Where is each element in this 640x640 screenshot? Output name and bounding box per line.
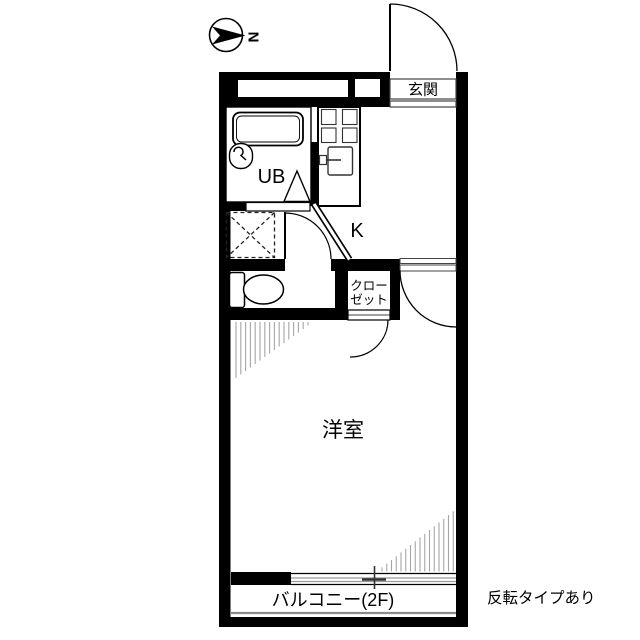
floorplan-canvas: N 玄関 UB (0, 0, 640, 640)
closet-label-line1: クロー (350, 279, 388, 293)
wall-ub-bottom (224, 202, 246, 211)
wall-right (456, 72, 468, 627)
floorplan-svg: N 玄関 UB (0, 0, 640, 640)
bathtub (233, 113, 303, 146)
room-door (400, 259, 456, 328)
reversed-type-note: 反転タイプあり (487, 589, 596, 607)
closet-door-swing-arc (350, 320, 388, 357)
entrance-area: 玄関 (390, 4, 457, 107)
kitchen-sink (328, 147, 353, 175)
room-door-swing-arc (400, 271, 456, 328)
wall-toilet-bottom (219, 308, 342, 320)
room-door-lintel-1 (400, 259, 456, 264)
stove-cell (343, 128, 358, 143)
unit-bath-label: UB (258, 166, 286, 188)
stove-cell (343, 110, 358, 125)
wall-balcony-left (231, 572, 291, 585)
sloped-ceiling-hatch-left (236, 322, 308, 378)
wall-bottom (219, 617, 468, 627)
entrance-step-strip (390, 101, 456, 107)
closet-label-line2: ゼット (350, 293, 388, 307)
unit-bath: UB (226, 107, 311, 211)
window-top-left (238, 80, 348, 97)
balcony-label: バルコニー(2F) (272, 590, 395, 610)
wall-corridor-toilet (230, 259, 285, 271)
window-top-small (355, 79, 380, 97)
closet-area: クロー ゼット (348, 279, 390, 357)
toilet-tank (230, 273, 245, 308)
washer-space (227, 213, 275, 258)
wall-closet-right (390, 271, 400, 320)
western-room-label: 洋室 (322, 419, 364, 442)
ub-door-strip (246, 203, 310, 212)
toilet-area (230, 273, 284, 308)
entrance-label: 玄関 (408, 82, 438, 99)
room-door-lintel-2 (400, 265, 456, 271)
stove-cell (322, 128, 337, 143)
north-compass: N (210, 19, 262, 52)
kitchen-label: K (350, 220, 364, 242)
entrance-door-swing-arc (390, 4, 457, 71)
western-room: 洋室 (236, 322, 453, 572)
wall-kitchen-room (331, 259, 400, 271)
corridor-area (227, 204, 350, 260)
stove-cell (322, 110, 337, 125)
hall-door-leaf-inner (314, 204, 350, 260)
north-label: N (244, 32, 261, 43)
sloped-ceiling-hatch-right (382, 511, 453, 571)
toilet-bowl (244, 275, 284, 304)
sink-faucet-base (320, 156, 327, 165)
north-label-group: N (244, 32, 261, 43)
